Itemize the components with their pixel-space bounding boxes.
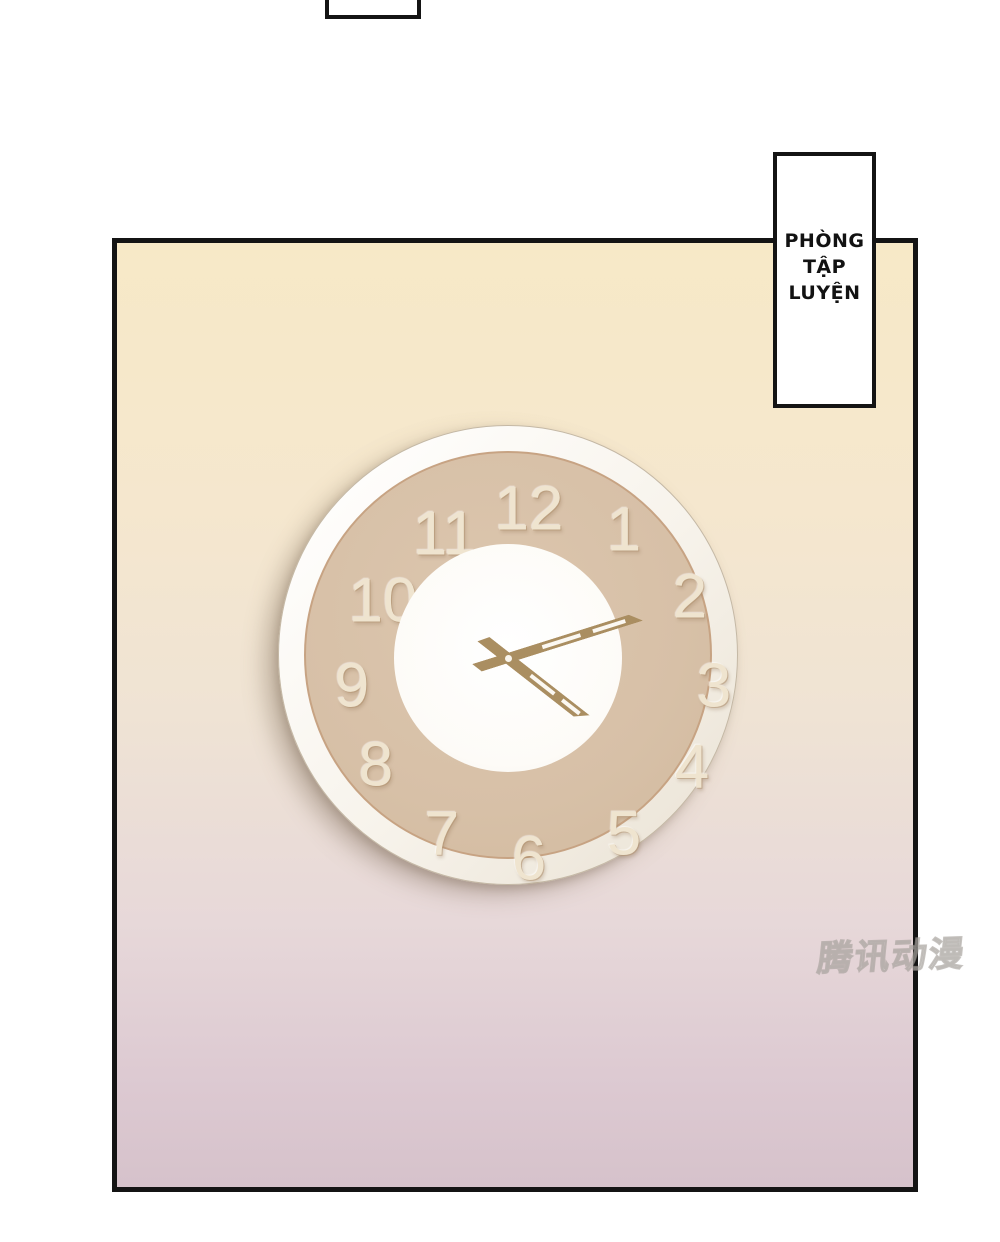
clock-numeral-7: 7 <box>425 799 459 870</box>
clock-pivot <box>505 655 512 662</box>
clock-numeral-5: 5 <box>607 799 641 870</box>
publisher-watermark: 腾讯动漫 <box>815 925 968 981</box>
clock-numeral-2: 2 <box>673 562 707 633</box>
comic-page: 12 1 2 3 4 5 6 7 8 9 10 11 <box>0 0 1000 1242</box>
cut-off-panel-top <box>325 0 421 19</box>
caption-line-2: TẬP <box>803 254 846 280</box>
wall-clock: 12 1 2 3 4 5 6 7 8 9 10 11 <box>278 425 738 885</box>
caption-line-3: LUYỆN <box>789 280 861 306</box>
clock-numeral-8: 8 <box>359 730 393 801</box>
caption-line-1: PHÒNG <box>785 228 865 254</box>
clock-numeral-9: 9 <box>335 651 369 722</box>
clock-numeral-1: 1 <box>607 495 641 566</box>
clock-numeral-4: 4 <box>675 732 709 803</box>
clock-numeral-3: 3 <box>697 651 731 722</box>
caption-box: PHÒNG TẬP LUYỆN <box>773 152 876 408</box>
clock-numeral-6: 6 <box>512 824 546 895</box>
clock-numeral-12: 12 <box>495 474 564 545</box>
